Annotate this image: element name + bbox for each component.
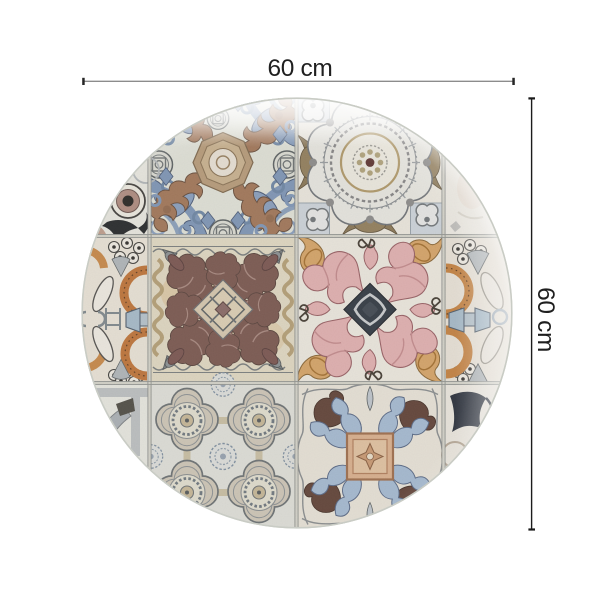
svg-text:60 cm: 60 cm xyxy=(268,55,333,82)
svg-text:60 cm: 60 cm xyxy=(532,287,559,352)
